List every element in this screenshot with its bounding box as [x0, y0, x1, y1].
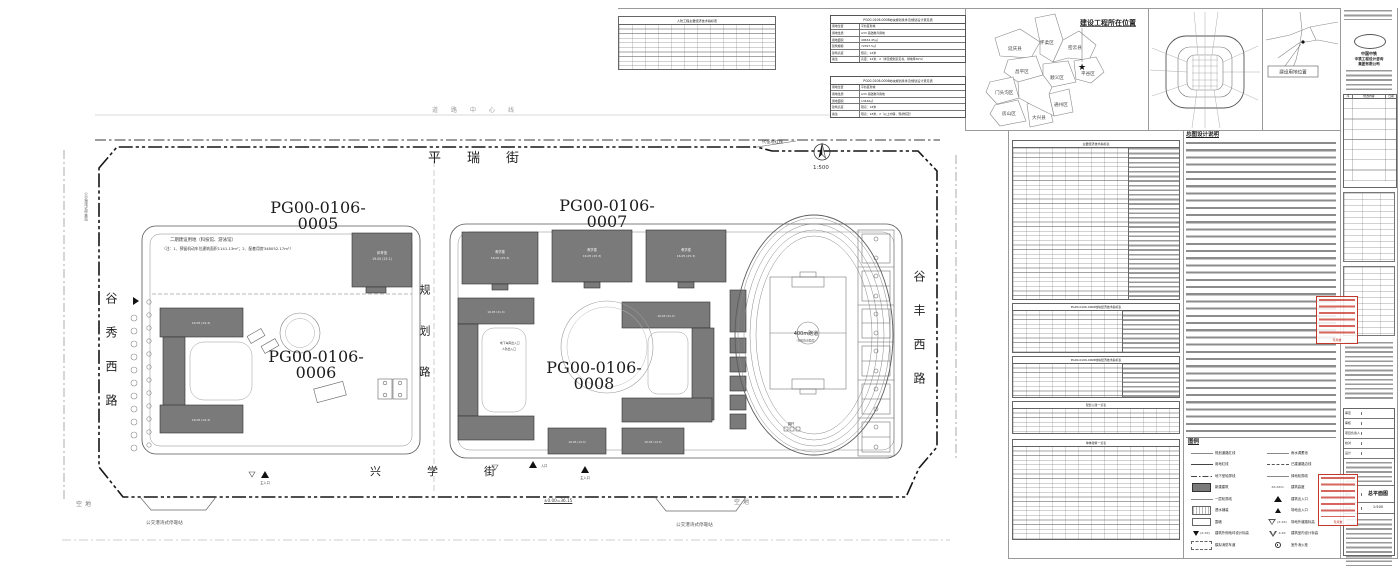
- legend-sym-basement-outline: [1191, 476, 1213, 477]
- ring-west-elev: 16.05 (21.3): [487, 310, 504, 314]
- legend-label: 模拟消防车道: [1215, 544, 1235, 547]
- track-label: 400m跑道: [794, 330, 818, 337]
- titleblock-misc-lines: [1346, 519, 1392, 566]
- company-address-lines: [1346, 70, 1392, 90]
- legend-sym-site-redline: [1191, 464, 1213, 465]
- gym-name: 体育馆: [377, 250, 388, 255]
- round-feature-inner: [286, 319, 315, 348]
- facility-table: 配套公建一览表: [1012, 401, 1180, 434]
- company-logo-icon: [1354, 34, 1386, 49]
- indicator-table-main-title: 主要经济技术指标表: [1013, 141, 1179, 148]
- ring-east-south: [622, 398, 712, 422]
- indicator-main-grid: [1013, 148, 1129, 299]
- bus-bay-west: [140, 497, 216, 510]
- planning-table-0008-title: PG00-0106-0008地块规划条件及规划设计意见表: [831, 16, 965, 24]
- legend-label: 用地红线: [1215, 463, 1229, 466]
- indicator-table-0006: PG00-0106-0006地块经济技术指标表: [1012, 303, 1180, 353]
- site-dot: [1301, 40, 1304, 43]
- datum-label: ±0.00=36.15: [544, 499, 572, 503]
- legend-label: 建筑出入口: [1291, 498, 1308, 501]
- revision-empty-rows: [1344, 99, 1396, 181]
- legend-label: 场地出入口: [1291, 509, 1308, 512]
- requisition-redline-label: 代征地红线: [762, 138, 784, 145]
- titleblock-toplines: [1344, 10, 1392, 20]
- district-label-2: 密云县: [1068, 44, 1082, 51]
- planning-table-0008: PG00-0106-0008地块规划条件及规划设计意见表 用地位置平谷区新城 用…: [830, 15, 966, 63]
- approval-stamp-2: 专用章: [1318, 474, 1358, 526]
- row-label: 建筑高度: [831, 104, 860, 110]
- legend-label: 地下室轮廓线: [1215, 475, 1235, 478]
- row-value: A33 基础教育用地: [860, 91, 965, 97]
- parcel5-note-2: （注：1、预留机动车位建筑面积1141.13m²；2、配套用房348052.17…: [162, 247, 293, 251]
- street-south-label: 兴学街: [370, 466, 541, 477]
- row-label: 备注: [831, 111, 860, 117]
- school-building-1-stair: [492, 284, 508, 290]
- sign-label-0: 审定: [1344, 412, 1362, 415]
- legend-label: 一层轮廓线: [1215, 498, 1232, 501]
- ring-east-elev: 16.05 (21.3): [657, 314, 674, 318]
- building-list-grid: [1013, 446, 1179, 539]
- legend-sym-hydrant: [1275, 542, 1281, 548]
- west-entry-arrow: [133, 297, 139, 305]
- scale-label: 1:500: [813, 165, 829, 171]
- row-label: 用地面积: [831, 37, 860, 43]
- row-value: 49634.45㎡: [860, 37, 965, 43]
- sign-label-4: 设计: [1344, 452, 1362, 455]
- row-label: 用地位置: [831, 24, 860, 30]
- dorm-west-wing: [163, 337, 185, 407]
- legend-sym-outer-elevation: [1193, 531, 1199, 536]
- flag-label: 旗杆: [788, 421, 795, 426]
- bus-bay-east: [655, 497, 746, 511]
- entrance-label-3: 主入口: [580, 475, 590, 480]
- legend-label: 场地外道路标高: [1291, 521, 1315, 524]
- east-court-strip: [858, 230, 894, 456]
- row-value: 72397.5㎡: [860, 43, 965, 49]
- ring-west-west: [458, 324, 478, 416]
- beijing-map-title: 建设工程所在位置: [1080, 18, 1136, 27]
- stamp-caption: 专用章: [1319, 520, 1357, 524]
- dorm-north-elev: 16.05 (19.3): [192, 321, 211, 325]
- buildings: [160, 230, 746, 454]
- row-value: 限高：18米，2（以上内容，现状核定）: [860, 111, 965, 117]
- stamp-text-lines: [1321, 477, 1355, 517]
- school-building-3-stair: [678, 282, 694, 288]
- rev-col-desc: 修改内容: [1353, 95, 1386, 98]
- indicator-main-notes: [1128, 148, 1179, 299]
- bus-stop-label-vertical: 公交港湾式停靠站: [84, 192, 88, 221]
- location-map: 建设用地位置: [1263, 8, 1340, 130]
- row-value: 平谷区新城: [860, 85, 965, 91]
- general-notes-title: 总图设计说明: [1186, 133, 1338, 139]
- row-label: 建筑高度: [831, 50, 860, 56]
- service-cell-5: [730, 414, 746, 429]
- street-middle-label: 规划路: [419, 284, 430, 407]
- district-label-3: 昌平区: [1015, 69, 1029, 75]
- legend-sym-fire-lane: [1191, 541, 1212, 550]
- legend-title: 图例: [1188, 440, 1338, 446]
- civil-defense-table: 人防工程主要经济技术指标表: [618, 16, 776, 70]
- district-label-8: 大兴县: [1032, 114, 1046, 121]
- row-label: 用地性质: [831, 91, 860, 97]
- bld7-2-elev: 16.05 (25.3): [583, 254, 602, 258]
- bld7-2-name: 教学楼: [587, 247, 597, 252]
- indicator-0008-grid: [1013, 363, 1123, 397]
- indicator-0006-grid: [1013, 310, 1123, 352]
- legend-label: 室外消火栓: [1291, 544, 1308, 547]
- frame-v6: [1008, 130, 1009, 558]
- bld7-3-name: 教学楼: [681, 247, 691, 252]
- legend-sym-building-entrance: [1274, 496, 1282, 502]
- flag-poles: [784, 427, 800, 431]
- south-block1-elev: 10.05 (14.3): [568, 440, 585, 444]
- legend-label: 新建建筑: [1215, 486, 1229, 489]
- legend-left-column: 规划道路红线 用地红线 地下室轮廓线 新建建筑 一层轮廓线 透水铺装 围墙 (X…: [1188, 448, 1264, 552]
- legend-label: 建筑高度: [1291, 486, 1305, 489]
- row-label: 用地性质: [831, 30, 860, 36]
- legend-sym-existing-road: [1267, 464, 1289, 465]
- indicator-table-main: 主要经济技术指标表: [1012, 140, 1180, 300]
- legend-sym-road-redline: [1191, 453, 1213, 454]
- row-value: 平谷区新城: [860, 24, 965, 30]
- frame-v7: [1183, 130, 1184, 558]
- entrance-label-2: 入口: [541, 464, 547, 468]
- bld7-3-elev: 16.05 (25.3): [677, 254, 696, 258]
- general-notes: 总图设计说明: [1186, 133, 1338, 438]
- row-value: 限高：18米: [860, 104, 965, 110]
- legend-sym-permeable-paving: [1192, 506, 1211, 515]
- legend-sym-groundfloor: [1191, 499, 1213, 500]
- street-trees: [131, 300, 151, 451]
- district-yanqing: [995, 29, 1040, 58]
- civil-defense-table-grid: [619, 24, 775, 69]
- row-value: 限高：24米: [860, 50, 965, 56]
- service-cell-4: [730, 395, 746, 410]
- company-name-1: 中国中铁: [1341, 52, 1397, 56]
- project-star-icon: ★: [1078, 63, 1086, 73]
- legend-label: 雨水调蓄池: [1291, 452, 1308, 455]
- stamp-text-lines: [1319, 299, 1355, 335]
- rev-col-seq: 序: [1344, 95, 1353, 98]
- frame-bottom: [1008, 558, 1398, 559]
- row-value: A33 基础教育用地: [860, 30, 965, 36]
- bus-stop-label-east: 公交港湾式停靠站: [676, 524, 713, 529]
- legend-label: 透水铺装: [1215, 509, 1229, 512]
- entrance-label-1: 主入口: [260, 480, 270, 485]
- ringroad-map: [1148, 8, 1262, 130]
- legend-label: 规划道路红线: [1215, 452, 1235, 455]
- legend-sym-indoor-elevation: [1269, 531, 1277, 537]
- location-callout-label: 建设用地位置: [1279, 69, 1307, 76]
- legend-label: 围墙: [1215, 521, 1222, 524]
- row-label: 用地面积: [831, 98, 860, 104]
- centerline-note: 道路中心线: [432, 108, 527, 114]
- parcel-5-label: PG00-0106-0005: [256, 200, 380, 232]
- legend-sym-site-entrance: [1275, 508, 1281, 513]
- district-label-7: 房山区: [1002, 110, 1016, 117]
- gym-annex: [366, 287, 386, 293]
- district-label-1: 怀柔区: [1040, 39, 1054, 46]
- street-east-label: 谷丰西路: [913, 270, 925, 406]
- indicator-0006-notes: [1122, 310, 1179, 352]
- district-label-4: 顺义区: [1050, 75, 1064, 81]
- rev-col-date: 日期: [1386, 95, 1396, 98]
- row-value: 高度：24米，2（详见规划意见书，绿地率30%）: [860, 57, 965, 63]
- entrance-triangle-1: [261, 471, 269, 478]
- district-label-0: 延庆县: [1008, 45, 1022, 52]
- indicator-table-0008: PG00-0106-0008地块经济技术指标表: [1012, 356, 1180, 398]
- legend-sym-offsite-elevation: [1268, 519, 1276, 525]
- legend-height-sample: XX.XXm: [1271, 486, 1283, 489]
- strip-notes: [1345, 342, 1393, 402]
- parcel-6-label: PG00-0106-0006: [254, 349, 378, 381]
- indicator-0008-notes: [1122, 363, 1179, 397]
- company-name-3: 集团有限公司: [1341, 63, 1397, 67]
- entrance-triangle-3: [581, 466, 589, 473]
- bld7-1-name: 教学楼: [495, 249, 505, 254]
- facility-grid: [1013, 408, 1179, 433]
- legend-label: 绿地轮廓线: [1291, 475, 1308, 478]
- sign-label-3: 校对: [1344, 442, 1362, 445]
- district-label-9: 通州区: [1054, 101, 1068, 108]
- legend-label: 建筑外侧地坪设计标高: [1215, 532, 1249, 535]
- approval-stamp-1: 专用章: [1316, 296, 1358, 344]
- signoff-grid-1: [1343, 192, 1395, 262]
- parcel-7-label: PG00-0106-0007: [545, 198, 669, 230]
- planning-table-0006-title: PG00-0106-0006地块规划条件及规划设计意见表: [831, 77, 965, 85]
- row-value: 13446㎡: [860, 98, 965, 104]
- row-label: 备注: [831, 57, 860, 63]
- beijing-district-map: 延庆县 怀柔区 密云县 昌平区 顺义区 平谷区 门头沟区 房山区 大兴县 通州区…: [965, 8, 1148, 130]
- empty-lot-label-west: 空地: [76, 502, 94, 508]
- legend-sym-new-building: [1192, 483, 1211, 492]
- planning-table-0006: PG00-0106-0006地块规划条件及规划设计意见表 用地位置平谷区新城 用…: [830, 76, 966, 118]
- dorm-south-elev: 16.05 (19.3): [192, 418, 211, 422]
- street-north-label: 平瑞街: [428, 152, 545, 165]
- legend-sym-stormwater: [1267, 453, 1289, 454]
- track-sub-label: (塑胶跑道面层): [797, 339, 816, 343]
- sign-label-1: 审核: [1344, 422, 1362, 425]
- dorm-courtyard: [190, 342, 252, 400]
- row-label: 建筑规模: [831, 43, 860, 49]
- gym-elev: 19.00 (25.1): [372, 257, 392, 261]
- sign-label-2: 项目负责人: [1344, 432, 1362, 435]
- bus-stop-label-west: 公交港湾式停靠站: [146, 522, 183, 527]
- school-building-2-stair: [584, 282, 600, 288]
- legend-elev-sample-2: (X.XX): [1277, 521, 1286, 524]
- street-west-label: 谷秀西路: [105, 292, 117, 428]
- revision-table: 序 修改内容 日期: [1343, 94, 1397, 188]
- general-notes-body: [1186, 142, 1336, 438]
- row-label: 用地位置: [831, 85, 860, 91]
- legend-elev-sample: (X.XX): [1200, 532, 1209, 535]
- parcel5-note-1: 二期建设用地（科技馆、游泳馆）: [170, 239, 236, 243]
- stamp-caption: 专用章: [1317, 338, 1357, 342]
- south-block2-elev: 10.05 (14.3): [644, 440, 661, 444]
- drawing-sheet: 1:500 代征地红线 400m跑道 (塑胶跑道面层) 旗杆 地下车库出入口 人…: [0, 0, 1400, 566]
- legend-elev-sample-3: X.XX: [1278, 532, 1285, 535]
- bld7-1-elev: 16.05 (25.3): [491, 256, 510, 260]
- garage-entry-label: 地下车库出入口: [500, 341, 520, 345]
- legend: 图例 规划道路红线 用地红线 地下室轮廓线 新建建筑 一层轮廓线 透水铺装 围墙…: [1188, 440, 1338, 551]
- civil-defense-entry-label: 人防出入口: [502, 347, 516, 351]
- drawing-name: 总平面图: [1362, 492, 1394, 497]
- legend-sym-green-outline: [1267, 476, 1289, 477]
- building-list-table: 单体建筑一览表: [1012, 439, 1180, 540]
- parcel-8-label: PG00-0106-0008: [532, 360, 656, 392]
- frame-maps-bottom: [965, 130, 1398, 131]
- elev-open-tri-1: [249, 472, 255, 477]
- district-label-6: 门头沟区: [995, 89, 1014, 96]
- scale-row-value: 1:500: [1362, 506, 1394, 510]
- legend-label: 建筑室内设计标高: [1291, 532, 1318, 535]
- frame-v5: [1397, 8, 1398, 558]
- legend-sym-fence: [1192, 518, 1211, 526]
- legend-label: 已建道路边线: [1291, 463, 1311, 466]
- empty-lot-label-east: 空地: [734, 500, 752, 506]
- ring-west-south: [458, 416, 534, 440]
